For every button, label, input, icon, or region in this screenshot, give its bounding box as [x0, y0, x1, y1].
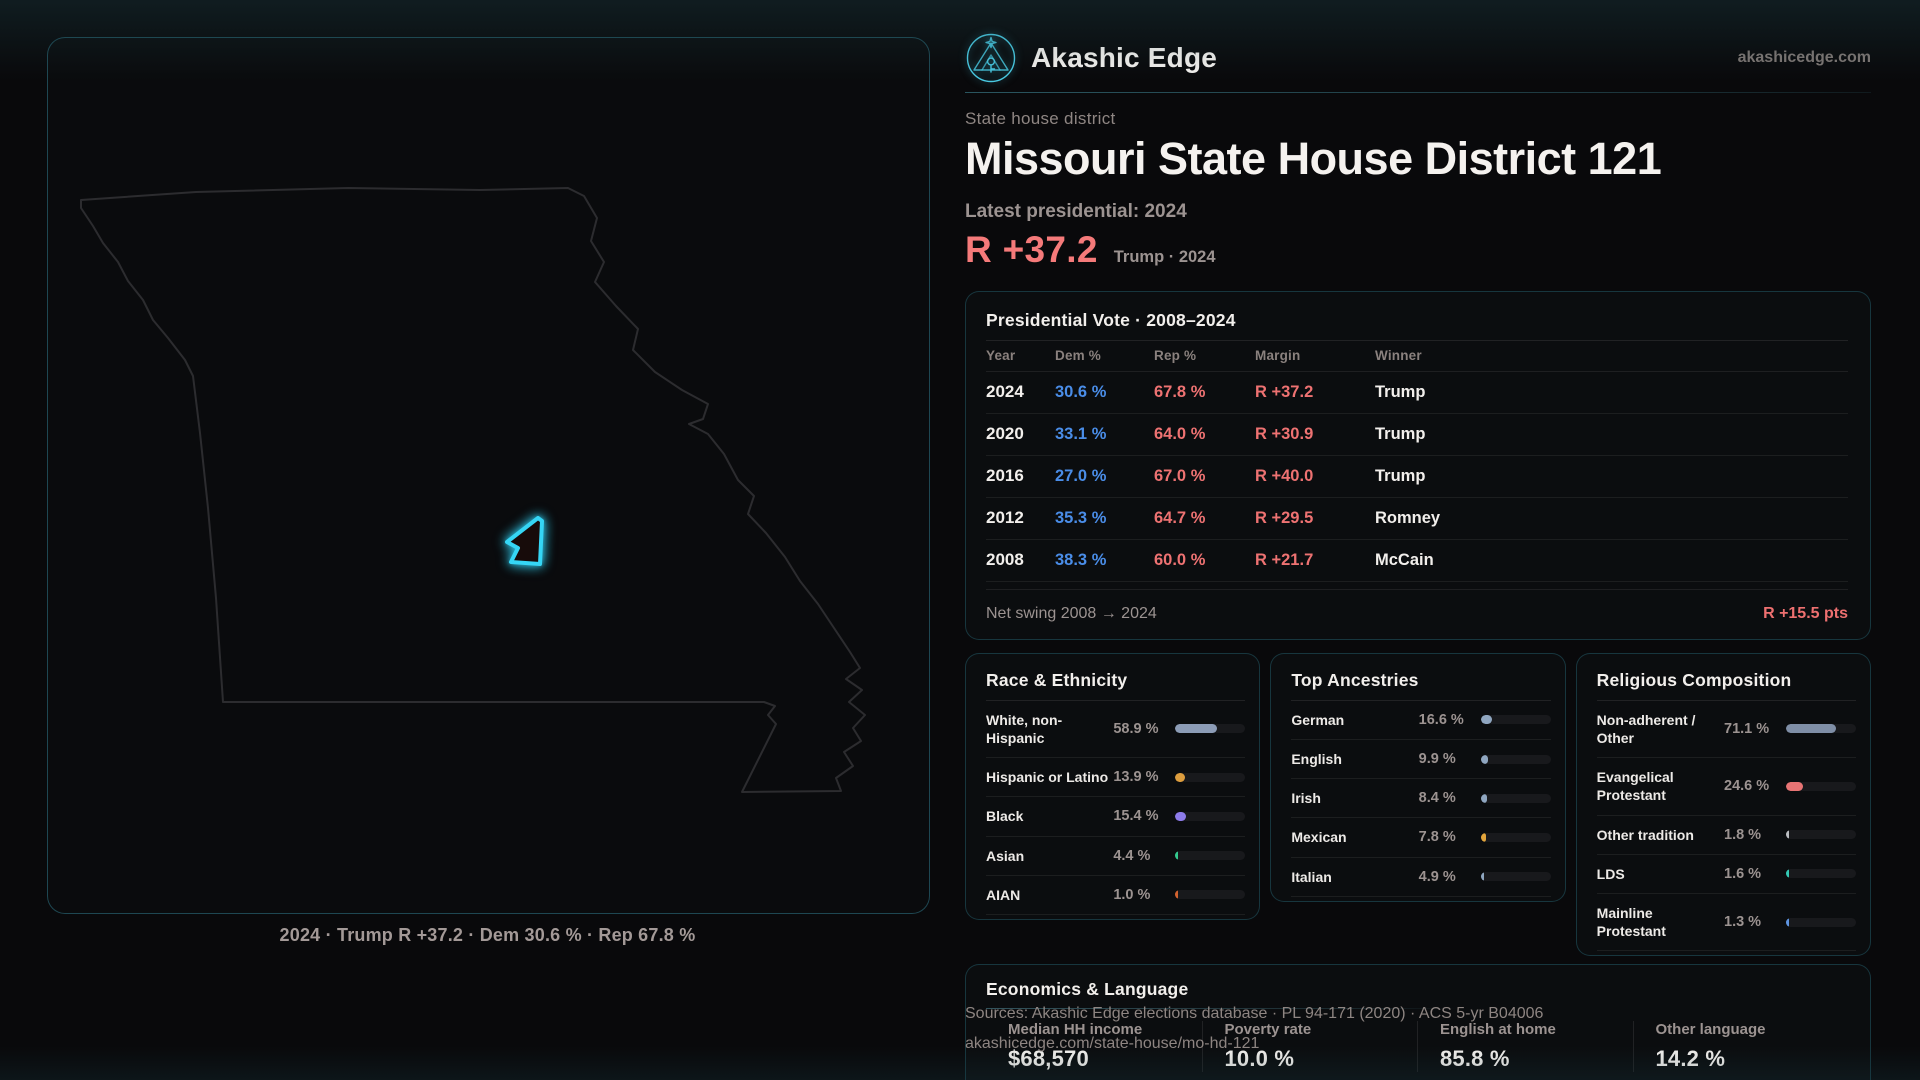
- stat-value: 58.9 %: [1113, 721, 1171, 737]
- stat-bar-track: [1786, 918, 1856, 927]
- cell-winner: McCain: [1375, 551, 1848, 570]
- stat-row: Irish 8.4 %: [1291, 779, 1550, 818]
- demographics-grid: Race & Ethnicity White, non-Hispanic 58.…: [965, 653, 1871, 957]
- brand-name: Akashic Edge: [1031, 42, 1738, 74]
- stat-bar-fill: [1175, 812, 1186, 821]
- district-map-panel: [47, 37, 930, 914]
- stat-bar-fill: [1481, 833, 1486, 842]
- cell-year: 2024: [986, 382, 1055, 402]
- stat-bar-fill: [1175, 773, 1185, 782]
- table-row: 2024 30.6 % 67.8 % R +37.2 Trump: [986, 372, 1848, 414]
- cell-margin: R +29.5: [1255, 509, 1375, 528]
- cell-rep-pct: 60.0 %: [1154, 551, 1255, 570]
- cell-rep-pct: 67.0 %: [1154, 467, 1255, 486]
- cell-margin: R +37.2: [1255, 383, 1375, 402]
- stat-value: 1.6 %: [1724, 866, 1782, 882]
- cell-dem-pct: 27.0 %: [1055, 467, 1154, 486]
- stat-row: English 9.9 %: [1291, 740, 1550, 779]
- cell-winner: Romney: [1375, 509, 1848, 528]
- stat-bar-fill: [1481, 872, 1484, 881]
- cell-winner: Trump: [1375, 467, 1848, 486]
- card-title: Race & Ethnicity: [986, 670, 1245, 691]
- cell-rep-pct: 64.0 %: [1154, 425, 1255, 444]
- net-swing-row: Net swing 2008 → 2024 R +15.5 pts: [986, 589, 1848, 639]
- stat-bar-fill: [1481, 794, 1487, 803]
- cell-year: 2020: [986, 424, 1055, 444]
- cell-rep-pct: 64.7 %: [1154, 509, 1255, 528]
- stat-bar-track: [1786, 830, 1856, 839]
- stat-value: 1.0 %: [1113, 887, 1171, 903]
- card-title: Economics & Language: [986, 979, 1848, 1000]
- stat-label: Other tradition: [1597, 826, 1720, 844]
- stat-bar-track: [1175, 724, 1245, 733]
- stat-label: Asian: [986, 847, 1109, 865]
- stat-row: Mexican 7.8 %: [1291, 818, 1550, 857]
- stat-row: Italian 4.9 %: [1291, 858, 1550, 897]
- divider: [986, 1008, 1848, 1009]
- stat-row: AIAN 1.0 %: [986, 876, 1245, 915]
- stat-value: 16.6 %: [1419, 712, 1477, 728]
- stat-value: 1.3 %: [1724, 914, 1782, 930]
- stat-label: German: [1291, 711, 1414, 729]
- cell-dem-pct: 30.6 %: [1055, 383, 1154, 402]
- stat-bar-track: [1786, 782, 1856, 791]
- stat-bar-fill: [1175, 890, 1178, 899]
- stat-bar-track: [1175, 773, 1245, 782]
- stat-label: Irish: [1291, 789, 1414, 807]
- stat-label: Mexican: [1291, 828, 1414, 846]
- stat-bar-track: [1481, 833, 1551, 842]
- table-row: 2008 38.3 % 60.0 % R +21.7 McCain: [986, 540, 1848, 582]
- stat-label: White, non-Hispanic: [986, 711, 1109, 747]
- top-ancestries-card: Top Ancestries German 16.6 % English 9.9: [1270, 653, 1565, 902]
- col-dem: Dem %: [1055, 348, 1154, 363]
- page-title: Missouri State House District 121: [965, 133, 1871, 185]
- brand-domain-link[interactable]: akashicedge.com: [1738, 49, 1871, 67]
- stat-bar-track: [1481, 794, 1551, 803]
- cell-winner: Trump: [1375, 425, 1848, 444]
- stat-bar-fill: [1786, 918, 1789, 927]
- table-row: 2020 33.1 % 64.0 % R +30.9 Trump: [986, 414, 1848, 456]
- stat-row: White, non-Hispanic 58.9 %: [986, 701, 1245, 758]
- stat-value: 4.4 %: [1113, 848, 1171, 864]
- stat-value: 24.6 %: [1724, 778, 1782, 794]
- stat-bar-track: [1786, 869, 1856, 878]
- net-swing-label: Net swing 2008 → 2024: [986, 605, 1157, 623]
- stat-value: 8.4 %: [1419, 790, 1477, 806]
- stat-bar-fill: [1481, 715, 1493, 724]
- stat-row: German 16.6 %: [1291, 701, 1550, 740]
- card-title: Presidential Vote · 2008–2024: [986, 310, 1848, 331]
- stat-bar-fill: [1786, 782, 1803, 791]
- stat-bar-track: [1481, 872, 1551, 881]
- stat-bar-track: [1175, 812, 1245, 821]
- cell-dem-pct: 33.1 %: [1055, 425, 1154, 444]
- header-brand-row: Akashic Edge akashicedge.com: [965, 30, 1871, 86]
- headline-margin-row: R +37.2 Trump · 2024: [965, 229, 1871, 271]
- card-title: Top Ancestries: [1291, 670, 1550, 691]
- race-ethnicity-card: Race & Ethnicity White, non-Hispanic 58.…: [965, 653, 1260, 920]
- stat-bar-fill: [1786, 724, 1836, 733]
- source-url[interactable]: akashicedge.com/state-house/mo-hd-121: [965, 1029, 1825, 1059]
- stat-row: Mainline Protestant 1.3 %: [1597, 894, 1856, 951]
- stat-value: 9.9 %: [1419, 751, 1477, 767]
- cell-winner: Trump: [1375, 383, 1848, 402]
- cell-year: 2016: [986, 466, 1055, 486]
- table-header-row: Year Dem % Rep % Margin Winner: [986, 341, 1848, 372]
- stat-label: Non-adherent / Other: [1597, 711, 1720, 747]
- map-caption: 2024 · Trump R +37.2 · Dem 30.6 % · Rep …: [47, 925, 928, 946]
- stat-label: English: [1291, 750, 1414, 768]
- cell-dem-pct: 35.3 %: [1055, 509, 1154, 528]
- stat-row: Asian 4.4 %: [986, 837, 1245, 876]
- cell-margin: R +30.9: [1255, 425, 1375, 444]
- col-year: Year: [986, 348, 1055, 363]
- stat-bar-track: [1786, 724, 1856, 733]
- stat-bar-track: [1481, 755, 1551, 764]
- dashboard-page: 2024 · Trump R +37.2 · Dem 30.6 % · Rep …: [0, 0, 1920, 1080]
- card-title: Religious Composition: [1597, 670, 1856, 691]
- missouri-state-outline: [81, 188, 865, 792]
- stat-value: 7.8 %: [1419, 829, 1477, 845]
- stat-row: Black 15.4 %: [986, 797, 1245, 836]
- stat-label: Evangelical Protestant: [1597, 768, 1720, 804]
- table-row: 2016 27.0 % 67.0 % R +40.0 Trump: [986, 456, 1848, 498]
- stat-bar-track: [1481, 715, 1551, 724]
- stat-label: Hispanic or Latino: [986, 768, 1109, 786]
- race-rows: White, non-Hispanic 58.9 % Hispanic or L…: [986, 701, 1245, 915]
- headline-margin-value: R +37.2: [965, 229, 1098, 271]
- stat-value: 15.4 %: [1113, 808, 1171, 824]
- col-rep: Rep %: [1154, 348, 1255, 363]
- headline-margin-caption: Trump · 2024: [1114, 248, 1216, 267]
- stat-bar-track: [1175, 890, 1245, 899]
- stat-value: 13.9 %: [1113, 769, 1171, 785]
- detail-column: Akashic Edge akashicedge.com State house…: [965, 30, 1871, 1080]
- district-kicker: State house district: [965, 109, 1871, 129]
- stat-bar-fill: [1786, 830, 1789, 839]
- cell-margin: R +40.0: [1255, 467, 1375, 486]
- stat-label: AIAN: [986, 886, 1109, 904]
- stat-row: Non-adherent / Other 71.1 %: [1597, 701, 1856, 758]
- cell-rep-pct: 67.8 %: [1154, 383, 1255, 402]
- cell-year: 2008: [986, 550, 1055, 570]
- stat-label: Italian: [1291, 868, 1414, 886]
- header-divider: [965, 92, 1871, 93]
- cell-dem-pct: 38.3 %: [1055, 551, 1154, 570]
- missouri-map: [48, 38, 929, 913]
- net-swing-value: R +15.5 pts: [1763, 605, 1848, 623]
- religion-rows: Non-adherent / Other 71.1 % Evangelical …: [1597, 701, 1856, 952]
- ancestry-rows: German 16.6 % English 9.9 % Irish: [1291, 701, 1550, 897]
- stat-label: LDS: [1597, 865, 1720, 883]
- stat-row: LDS 1.6 %: [1597, 855, 1856, 894]
- stat-value: 4.9 %: [1419, 869, 1477, 885]
- stat-bar-fill: [1175, 851, 1178, 860]
- stat-row: Other tradition 1.8 %: [1597, 816, 1856, 855]
- stat-bar-track: [1175, 851, 1245, 860]
- stat-row: Hispanic or Latino 13.9 %: [986, 758, 1245, 797]
- stat-label: Mainline Protestant: [1597, 904, 1720, 940]
- col-margin: Margin: [1255, 348, 1375, 363]
- latest-presidential-label: Latest presidential: 2024: [965, 201, 1871, 223]
- cell-year: 2012: [986, 508, 1055, 528]
- table-row: 2012 35.3 % 64.7 % R +29.5 Romney: [986, 498, 1848, 540]
- akashic-edge-logo-icon: [965, 32, 1017, 84]
- stat-bar-fill: [1175, 724, 1216, 733]
- highlighted-district-shape[interactable]: [507, 518, 542, 564]
- presidential-vote-card: Presidential Vote · 2008–2024 Year Dem %…: [965, 291, 1871, 640]
- cell-margin: R +21.7: [1255, 551, 1375, 570]
- stat-bar-fill: [1786, 869, 1789, 878]
- stat-value: 71.1 %: [1724, 721, 1782, 737]
- col-winner: Winner: [1375, 348, 1848, 363]
- stat-label: Black: [986, 807, 1109, 825]
- stat-value: 1.8 %: [1724, 827, 1782, 843]
- table-body: 2024 30.6 % 67.8 % R +37.2 Trump 2020 33…: [986, 372, 1848, 582]
- economics-language-card: Economics & Language Median HH income $6…: [965, 964, 1871, 1080]
- stat-bar-fill: [1481, 755, 1488, 764]
- stat-row: Evangelical Protestant 24.6 %: [1597, 758, 1856, 815]
- religious-composition-card: Religious Composition Non-adherent / Oth…: [1576, 653, 1871, 957]
